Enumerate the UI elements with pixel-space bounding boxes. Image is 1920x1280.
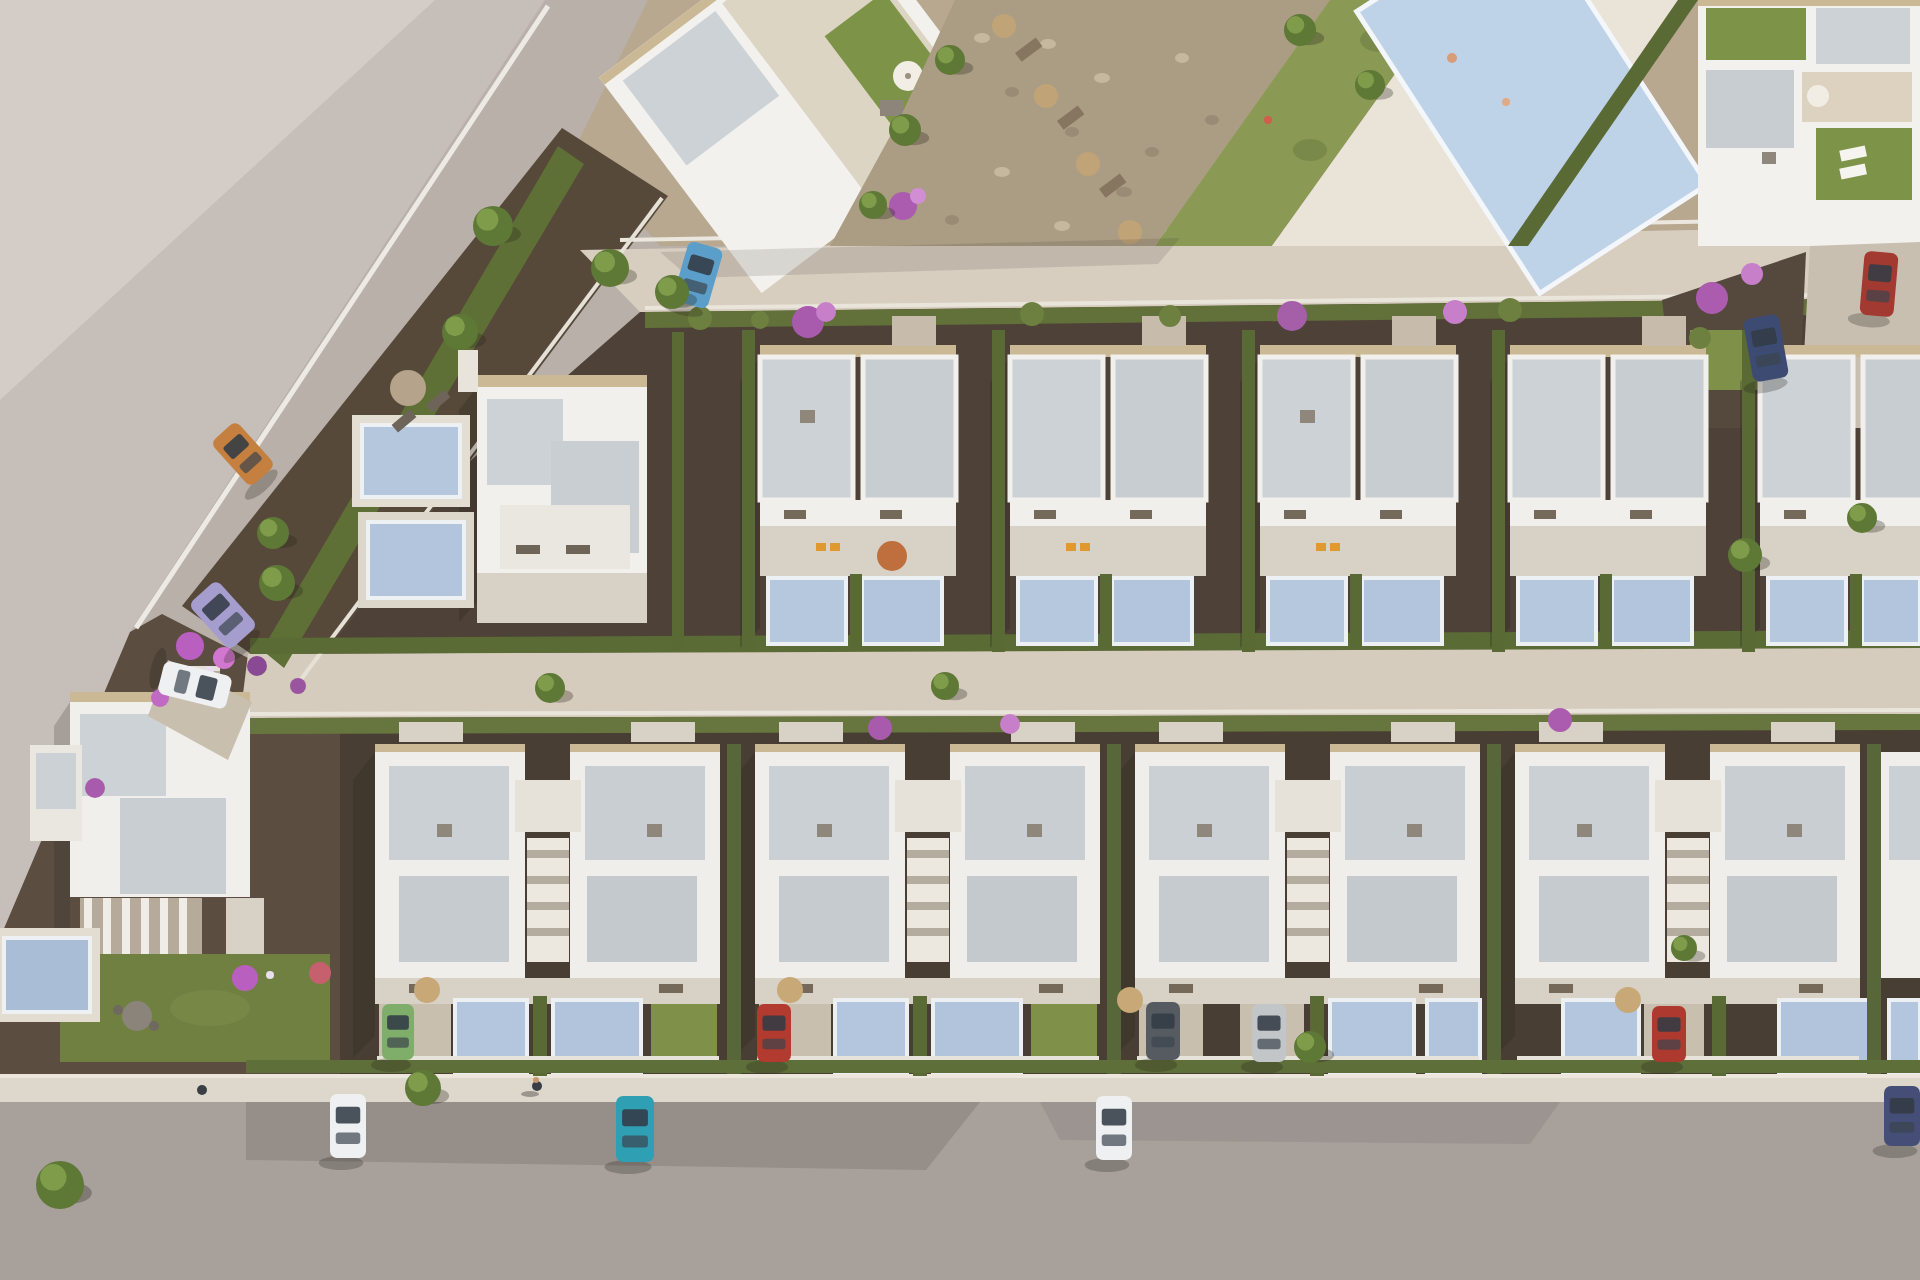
house-window xyxy=(1419,984,1443,993)
villa1-cornice xyxy=(477,375,647,387)
duplex-roof-right xyxy=(1863,357,1920,500)
bougainvillea xyxy=(1443,300,1467,324)
house-roof xyxy=(965,766,1085,860)
duplex-window xyxy=(1784,510,1806,519)
duplex-roof-left xyxy=(1010,357,1103,500)
stair-tread xyxy=(1287,928,1329,936)
patio-umbrella-tan xyxy=(777,977,803,1003)
apartment-gray-roof xyxy=(1706,70,1794,148)
car-green-driveway-body xyxy=(382,1004,414,1060)
car-darkblue-road-windshield xyxy=(1890,1098,1914,1114)
house-roof xyxy=(1889,766,1920,860)
hedge-divider xyxy=(1242,330,1255,652)
ac-unit xyxy=(647,824,662,837)
car-darkblue-road-shadow xyxy=(1873,1144,1918,1158)
private-pool xyxy=(1768,578,1846,644)
swimmer xyxy=(1447,53,1457,63)
car-white-road-body xyxy=(1096,1096,1132,1160)
car-white-road-body xyxy=(330,1094,366,1158)
palm-tree-fronds-light xyxy=(1297,1033,1315,1051)
stair-tread xyxy=(1287,850,1329,858)
garden-chair xyxy=(149,1021,159,1031)
pergola-slat xyxy=(179,898,187,954)
private-pool xyxy=(1112,578,1192,644)
house-cornice xyxy=(1515,744,1665,752)
white-flowers xyxy=(266,971,274,979)
house-roof xyxy=(587,876,697,962)
driveway-gate xyxy=(1392,316,1436,346)
patio-chair xyxy=(1330,543,1340,551)
villa1-pool xyxy=(362,425,460,497)
car-white-road-windshield xyxy=(1102,1109,1126,1126)
bougainvillea xyxy=(232,965,258,991)
ac-unit xyxy=(1197,824,1212,837)
corner-villa-roof xyxy=(120,798,226,894)
bougainvillea xyxy=(1696,282,1728,314)
duplex-roof-right xyxy=(1613,357,1706,500)
private-pool xyxy=(1862,578,1920,644)
duplex-patio xyxy=(1260,526,1456,576)
ac-unit xyxy=(1027,824,1042,837)
villa-top-umbrella-pole xyxy=(905,73,911,79)
car-red-driveway-body xyxy=(1652,1006,1686,1062)
duplex-patio xyxy=(1510,526,1706,576)
pebble xyxy=(1205,115,1219,125)
patio-umbrella-tan xyxy=(1615,987,1641,1013)
villa1-patio xyxy=(477,573,647,623)
palm-tree-fronds-light xyxy=(262,567,282,587)
garden-chair xyxy=(113,1005,123,1015)
palm-tree-fronds-light xyxy=(658,277,677,296)
rear-terrace xyxy=(1391,722,1455,742)
pebble xyxy=(974,33,990,43)
palm-tree-fronds-light xyxy=(861,193,876,208)
patio-chair xyxy=(1066,543,1076,551)
pedestrian-head xyxy=(533,1077,539,1083)
car-white-road-shadow xyxy=(1085,1158,1130,1172)
house-roof xyxy=(1529,766,1649,860)
swimmer xyxy=(1502,98,1510,106)
house-roof xyxy=(1149,766,1269,860)
stair-tread xyxy=(527,902,569,910)
bougainvillea xyxy=(290,678,306,694)
palm-tree-fronds-light xyxy=(1673,937,1687,951)
duplex-window xyxy=(1034,510,1056,519)
driveway-gate xyxy=(1642,316,1686,346)
patio-chair xyxy=(830,543,840,551)
ac-unit xyxy=(1407,824,1422,837)
car-silver-driveway-shadow xyxy=(1241,1060,1283,1074)
pebble xyxy=(945,215,959,225)
private-pool xyxy=(1268,578,1346,644)
pergola-slat xyxy=(141,898,149,954)
patio-chair xyxy=(1316,543,1326,551)
pebble xyxy=(1116,187,1132,197)
house-cornice xyxy=(1330,744,1480,752)
ac-unit xyxy=(817,824,832,837)
hedge-divider xyxy=(1742,330,1755,652)
sun-umbrella xyxy=(1034,84,1058,108)
house-roof xyxy=(585,766,705,860)
house-cornice xyxy=(1710,744,1860,752)
rear-terrace xyxy=(1159,722,1223,742)
hedge-divider xyxy=(672,332,684,650)
pergola-slat xyxy=(103,898,111,954)
palm-tree-fronds-light xyxy=(892,116,910,134)
house-roof xyxy=(399,876,509,962)
hedge-divider xyxy=(1487,744,1501,1074)
shrub xyxy=(1498,298,1522,322)
apartment-gray-roof xyxy=(1816,8,1910,64)
car-red-street-windshield xyxy=(1868,264,1892,283)
car-red-driveway-rear-glass xyxy=(1657,1040,1680,1050)
rear-terrace xyxy=(1539,722,1603,742)
duplex-window xyxy=(1284,510,1306,519)
car-red-driveway-shadow xyxy=(746,1060,788,1074)
car-green-driveway-rear-glass xyxy=(387,1038,409,1048)
house-window xyxy=(1549,984,1573,993)
house-roof xyxy=(1727,876,1837,962)
house-roof xyxy=(1159,876,1269,962)
rear-terrace xyxy=(1771,722,1835,742)
stair-tread xyxy=(907,928,949,936)
villa1-window xyxy=(516,545,540,554)
house-roof xyxy=(1725,766,1845,860)
scene-svg xyxy=(0,0,1920,1280)
hedge-divider xyxy=(742,330,755,652)
ac-unit xyxy=(1762,152,1776,164)
pebble xyxy=(1005,87,1019,97)
private-pool xyxy=(1018,578,1096,644)
car-silver-driveway-body xyxy=(1252,1004,1286,1062)
pebble xyxy=(1175,53,1189,63)
duplex-roof-left xyxy=(1260,357,1353,500)
rear-terrace xyxy=(779,722,843,742)
car-teal-road-rear-glass xyxy=(622,1136,648,1148)
rear-terrace xyxy=(399,722,463,742)
duplex-window xyxy=(1130,510,1152,519)
stair-tread xyxy=(1287,902,1329,910)
hedge-divider xyxy=(1600,574,1612,648)
bougainvillea xyxy=(1741,263,1763,285)
duplex-window xyxy=(1630,510,1652,519)
pedestrian-shadow xyxy=(521,1091,539,1097)
ac-unit xyxy=(800,410,815,423)
car-white-road-rear-glass xyxy=(1102,1134,1126,1146)
palm-tree-fronds-light xyxy=(1358,72,1375,89)
duplex-window xyxy=(880,510,902,519)
flowering-shrub-red xyxy=(309,962,331,984)
patio-chair xyxy=(1080,543,1090,551)
hedge-divider xyxy=(992,330,1005,652)
car-darkblue-road-rear-glass xyxy=(1890,1122,1914,1133)
duplex-patio xyxy=(1010,526,1206,576)
bougainvillea xyxy=(910,188,926,204)
car-red-driveway-rear-glass xyxy=(762,1039,785,1049)
bougainvillea xyxy=(247,656,267,676)
apartment-green-roof xyxy=(1706,8,1806,60)
stair-tread xyxy=(1667,850,1709,858)
building-shadow xyxy=(353,752,375,1058)
garden-table xyxy=(122,1001,152,1031)
stair-landing xyxy=(895,780,961,832)
car-red-street-rear-glass xyxy=(1866,289,1890,302)
patio-chair xyxy=(816,543,826,551)
hedge-divider xyxy=(1107,744,1121,1074)
shrub xyxy=(1159,305,1181,327)
duplex-window xyxy=(1380,510,1402,519)
ac-unit xyxy=(437,824,452,837)
house-roof xyxy=(1539,876,1649,962)
car-gray-driveway-body xyxy=(1146,1002,1180,1060)
duplex-roof-right xyxy=(1363,357,1456,500)
bougainvillea xyxy=(1000,714,1020,734)
hedge-divider xyxy=(1867,744,1881,1074)
house-cornice xyxy=(950,744,1100,752)
car-silver-driveway-rear-glass xyxy=(1257,1039,1280,1049)
hedge-divider xyxy=(727,744,741,1074)
duplex-roof-left xyxy=(760,357,853,500)
house-cornice xyxy=(375,744,525,752)
stair-tread xyxy=(907,902,949,910)
sunbather xyxy=(1264,116,1272,124)
aerial-development-render xyxy=(0,0,1920,1280)
garden-path xyxy=(226,898,264,954)
private-pool xyxy=(1518,578,1596,644)
private-pool xyxy=(1362,578,1442,644)
car-red-driveway-shadow xyxy=(1641,1060,1683,1074)
house-roof xyxy=(769,766,889,860)
hedge-divider xyxy=(1850,574,1862,648)
stair-tread xyxy=(907,876,949,884)
bougainvillea xyxy=(1277,301,1307,331)
corner-villa-wing-roof xyxy=(36,753,76,809)
stair-tread xyxy=(527,876,569,884)
stair-tread xyxy=(527,850,569,858)
pebble xyxy=(1054,221,1070,231)
car-green-driveway-shadow xyxy=(371,1058,411,1072)
house-cornice xyxy=(755,744,905,752)
palm-tree-fronds-light xyxy=(933,674,948,689)
driveway-gate xyxy=(892,316,936,346)
private-pool xyxy=(1612,578,1692,644)
car-red-driveway-windshield xyxy=(762,1016,785,1031)
palm-tree-fronds-light xyxy=(408,1072,428,1092)
car-gray-driveway-windshield xyxy=(1151,1014,1174,1029)
patio-umbrella-tan xyxy=(1117,987,1143,1013)
shrub xyxy=(751,311,769,329)
palm-tree-fronds-light xyxy=(40,1164,66,1190)
corner-pool xyxy=(4,938,90,1012)
pergola-slat xyxy=(122,898,130,954)
house-window xyxy=(1799,984,1823,993)
house-roof xyxy=(967,876,1077,962)
duplex-window xyxy=(1534,510,1556,519)
bougainvillea xyxy=(85,778,105,798)
palm-tree-fronds-light xyxy=(476,209,498,231)
patio-umbrella-terracotta xyxy=(877,541,907,571)
patio-umbrella-tan xyxy=(414,977,440,1003)
hedge-divider xyxy=(1492,330,1505,652)
car-teal-road-body xyxy=(616,1096,654,1162)
car-red-street-body xyxy=(1859,251,1898,318)
house-window xyxy=(659,984,683,993)
pebble xyxy=(1040,39,1056,49)
house-roof xyxy=(1345,766,1465,860)
hedge-divider xyxy=(1100,574,1112,648)
stair-tread xyxy=(1667,902,1709,910)
rear-terrace xyxy=(1011,722,1075,742)
bougainvillea xyxy=(868,716,892,740)
ac-unit xyxy=(1577,824,1592,837)
pedestrian xyxy=(197,1085,207,1095)
stair-tread xyxy=(1287,876,1329,884)
bougainvillea xyxy=(816,302,836,322)
duplex-roof-left xyxy=(1510,357,1603,500)
palm-tree-fronds-light xyxy=(1287,16,1305,34)
stair-tread xyxy=(907,850,949,858)
palm-tree-fronds-light xyxy=(938,47,955,64)
ac-unit xyxy=(1787,824,1802,837)
street-middle xyxy=(240,646,1920,718)
private-pool xyxy=(768,578,846,644)
palm-tree-fronds-light xyxy=(594,251,615,272)
bougainvillea xyxy=(176,632,204,660)
villa1-entry-stairs xyxy=(458,350,478,392)
palm-tree-fronds-light xyxy=(538,675,555,692)
duplex-roof-right xyxy=(1113,357,1206,500)
duplex-patio xyxy=(760,526,956,576)
house-cornice xyxy=(1135,744,1285,752)
sun-umbrella xyxy=(1076,152,1100,176)
private-pool xyxy=(862,578,942,644)
stair-landing xyxy=(515,780,581,832)
car-gray-driveway-rear-glass xyxy=(1151,1037,1174,1047)
palm-tree-fronds-light xyxy=(445,316,465,336)
car-red-driveway-body xyxy=(757,1004,791,1062)
car-white-road-shadow xyxy=(319,1156,364,1170)
pebble xyxy=(1145,147,1159,157)
car-teal-road-windshield xyxy=(622,1109,648,1126)
pebble xyxy=(994,167,1010,177)
car-silver-driveway-windshield xyxy=(1257,1016,1280,1031)
car-white-road-windshield xyxy=(336,1107,360,1124)
hedge-divider xyxy=(850,574,862,648)
stair-tread xyxy=(1667,876,1709,884)
stair-tread xyxy=(1667,928,1709,936)
car-teal-road-shadow xyxy=(604,1160,651,1174)
sun-umbrella xyxy=(992,14,1016,38)
villa1-pool xyxy=(368,522,464,598)
duplex-window xyxy=(784,510,806,519)
car-green-driveway-windshield xyxy=(387,1015,409,1030)
car-gray-driveway-shadow xyxy=(1135,1058,1177,1072)
stair-landing xyxy=(1655,780,1721,832)
pebble xyxy=(1094,73,1110,83)
villa1-wing xyxy=(500,505,630,569)
pebble xyxy=(1065,127,1079,137)
house-roof xyxy=(779,876,889,962)
stair-landing xyxy=(1275,780,1341,832)
pool-lawn-shade xyxy=(1293,139,1327,161)
hedge-divider xyxy=(1350,574,1362,648)
rear-terrace xyxy=(631,722,695,742)
house-roof xyxy=(389,766,509,860)
apartment-umbrella xyxy=(1807,85,1829,107)
house-cornice xyxy=(570,744,720,752)
apartment-cornice xyxy=(1698,0,1920,6)
palm-tree-fronds-light xyxy=(260,519,278,537)
house-window xyxy=(1039,984,1063,993)
house-window xyxy=(1169,984,1193,993)
pergola-slat xyxy=(160,898,168,954)
car-darkblue-road-body xyxy=(1884,1086,1920,1146)
villa-top-table xyxy=(880,100,904,116)
duplex-roof-right xyxy=(863,357,956,500)
stair-tread xyxy=(527,928,569,936)
car-white-road-rear-glass xyxy=(336,1132,360,1144)
palm-tree-fronds-light xyxy=(1850,505,1867,522)
shrub xyxy=(1689,327,1711,349)
villa1-window xyxy=(566,545,590,554)
sidewalk xyxy=(0,1074,1920,1102)
duplex-patio xyxy=(1760,526,1920,576)
palm-tree-fronds-light xyxy=(1731,540,1750,559)
corner-lawn-light xyxy=(170,990,250,1026)
shrub xyxy=(1020,302,1044,326)
garden-umbrella xyxy=(390,370,426,406)
bougainvillea xyxy=(1548,708,1572,732)
ac-unit xyxy=(1300,410,1315,423)
house-roof xyxy=(1347,876,1457,962)
car-red-driveway-windshield xyxy=(1657,1017,1680,1032)
